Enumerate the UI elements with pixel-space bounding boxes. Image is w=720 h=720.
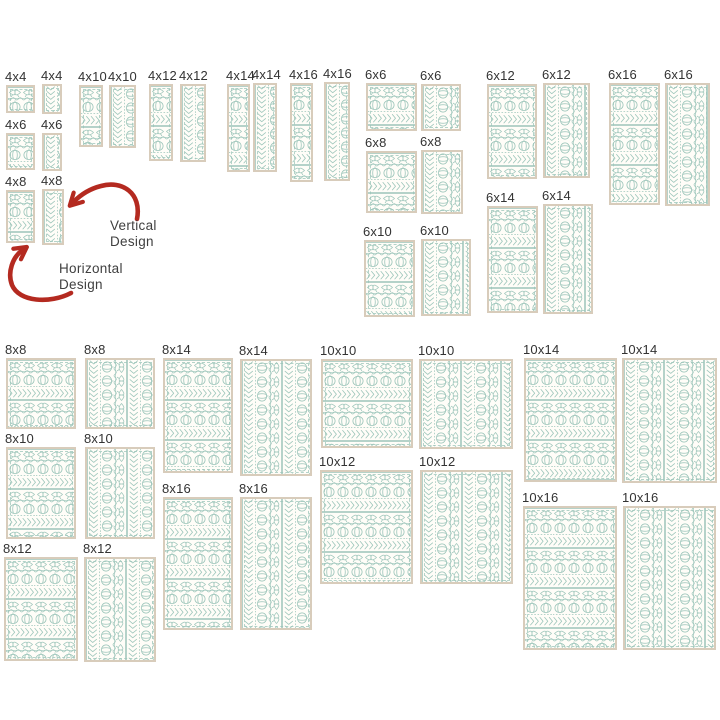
size-label-10x12-vertical: 10x12 (419, 454, 455, 469)
size-label-10x10-horizontal: 10x10 (320, 343, 356, 358)
design-swatch-4x8-horizontal (6, 190, 35, 243)
stitch-pattern-horizontal (6, 559, 76, 659)
design-swatch-6x6-horizontal (366, 83, 417, 131)
size-label-4x16-horizontal: 4x16 (289, 67, 318, 82)
catalog-layer: 4x44x44x64x64x84x84x104x104x124x124x144x… (0, 0, 720, 720)
size-label-8x14-horizontal: 8x14 (162, 342, 191, 357)
horizontal-design-note-line2: Design (59, 277, 123, 293)
size-label-10x16-horizontal: 10x16 (522, 490, 558, 505)
stitch-pattern-horizontal (525, 508, 615, 648)
stitch-pattern-horizontal (366, 242, 413, 315)
size-label-8x8-horizontal: 8x8 (5, 342, 27, 357)
size-label-4x12-vertical: 4x12 (179, 68, 208, 83)
stitch-pattern-horizontal (489, 86, 535, 177)
design-swatch-6x8-horizontal (366, 151, 417, 213)
size-label-6x8-horizontal: 6x8 (365, 135, 387, 150)
stitch-pattern-horizontal (368, 85, 415, 129)
design-swatch-4x10-horizontal (79, 85, 103, 147)
size-label-4x14-horizontal: 4x14 (226, 68, 255, 83)
vertical-design-note-line1: Vertical (110, 218, 157, 234)
size-label-6x12-vertical: 6x12 (542, 67, 571, 82)
stitch-pattern-vertical (423, 152, 461, 212)
stitch-pattern-vertical (87, 449, 153, 537)
stitch-pattern-horizontal (323, 361, 411, 446)
design-swatch-8x8-vertical (85, 358, 155, 429)
stitch-pattern-vertical (44, 86, 60, 112)
design-swatch-8x12-vertical (84, 557, 156, 662)
stitch-pattern-vertical (182, 86, 204, 160)
size-label-10x14-vertical: 10x14 (621, 342, 657, 357)
size-label-4x10-vertical: 4x10 (108, 69, 137, 84)
design-swatch-6x14-horizontal (487, 206, 538, 313)
stitch-pattern-vertical (111, 87, 134, 146)
size-label-8x10-vertical: 8x10 (84, 431, 113, 446)
size-label-6x16-horizontal: 6x16 (608, 67, 637, 82)
size-label-4x12-horizontal: 4x12 (148, 68, 177, 83)
design-swatch-10x12-vertical (420, 470, 513, 584)
design-swatch-8x12-horizontal (4, 557, 78, 661)
size-label-6x6-horizontal: 6x6 (365, 67, 387, 82)
size-label-4x4-horizontal: 4x4 (5, 69, 27, 84)
design-swatch-6x10-horizontal (364, 240, 415, 317)
design-swatch-8x14-horizontal (163, 358, 233, 473)
design-swatch-4x4-horizontal (6, 85, 35, 113)
size-label-4x10-horizontal: 4x10 (78, 69, 107, 84)
design-swatch-4x8-vertical (42, 189, 64, 245)
stitch-pattern-horizontal (8, 135, 33, 168)
design-swatch-10x16-vertical (623, 506, 716, 650)
design-swatch-4x6-horizontal (6, 133, 35, 170)
size-label-10x16-vertical: 10x16 (622, 490, 658, 505)
size-label-8x8-vertical: 8x8 (84, 342, 106, 357)
horizontal-design-note-line1: Horizontal (59, 261, 123, 277)
design-swatch-6x12-vertical (543, 83, 590, 178)
size-label-8x12-horizontal: 8x12 (3, 541, 32, 556)
design-swatch-4x4-vertical (42, 84, 62, 114)
design-swatch-10x12-horizontal (320, 470, 413, 584)
size-chart-canvas: 4x44x44x64x64x84x84x104x104x124x124x144x… (0, 0, 720, 720)
size-label-6x10-horizontal: 6x10 (363, 224, 392, 239)
design-swatch-6x8-vertical (421, 150, 463, 214)
design-swatch-4x16-horizontal (290, 83, 313, 182)
design-swatch-8x16-vertical (240, 497, 312, 630)
stitch-pattern-vertical (86, 559, 154, 660)
design-swatch-6x16-vertical (665, 83, 710, 206)
stitch-pattern-vertical (255, 85, 275, 170)
stitch-pattern-horizontal (229, 86, 248, 170)
size-label-4x16-vertical: 4x16 (323, 66, 352, 81)
stitch-pattern-vertical (421, 361, 511, 447)
stitch-pattern-horizontal (81, 87, 101, 145)
stitch-pattern-vertical (545, 206, 591, 312)
stitch-pattern-vertical (422, 472, 511, 582)
size-label-8x10-horizontal: 8x10 (5, 431, 34, 446)
size-label-4x8-horizontal: 4x8 (5, 174, 27, 189)
size-label-4x6-horizontal: 4x6 (5, 117, 27, 132)
size-label-4x4-vertical: 4x4 (41, 68, 63, 83)
design-swatch-10x10-vertical (419, 359, 513, 449)
stitch-pattern-horizontal (8, 192, 33, 241)
design-swatch-10x14-vertical (622, 358, 717, 483)
design-swatch-4x14-vertical (253, 83, 277, 172)
stitch-pattern-horizontal (8, 87, 33, 111)
stitch-pattern-horizontal (322, 472, 411, 582)
design-swatch-10x14-horizontal (524, 358, 617, 482)
size-label-8x16-horizontal: 8x16 (162, 481, 191, 496)
stitch-pattern-vertical (326, 84, 348, 179)
stitch-pattern-vertical (625, 508, 714, 648)
stitch-pattern-vertical (44, 135, 60, 169)
stitch-pattern-vertical (242, 499, 310, 628)
design-swatch-4x12-vertical (180, 84, 206, 162)
vertical-design-note-line2: Design (110, 234, 157, 250)
stitch-pattern-vertical (545, 85, 588, 176)
design-swatch-6x14-vertical (543, 204, 593, 314)
stitch-pattern-vertical (423, 241, 469, 314)
stitch-pattern-horizontal (292, 85, 311, 180)
stitch-pattern-horizontal (165, 360, 231, 471)
stitch-pattern-vertical (667, 85, 708, 204)
size-label-8x16-vertical: 8x16 (239, 481, 268, 496)
stitch-pattern-horizontal (611, 85, 658, 203)
stitch-pattern-vertical (624, 360, 715, 481)
design-swatch-8x14-vertical (240, 359, 312, 476)
design-swatch-6x16-horizontal (609, 83, 660, 205)
size-label-10x10-vertical: 10x10 (418, 343, 454, 358)
design-swatch-6x12-horizontal (487, 84, 537, 179)
size-label-4x14-vertical: 4x14 (252, 67, 281, 82)
stitch-pattern-horizontal (8, 360, 74, 427)
stitch-pattern-vertical (242, 361, 310, 474)
design-swatch-6x10-vertical (421, 239, 471, 316)
size-label-6x14-horizontal: 6x14 (486, 190, 515, 205)
size-label-6x12-horizontal: 6x12 (486, 68, 515, 83)
stitch-pattern-vertical (87, 360, 153, 427)
size-label-6x14-vertical: 6x14 (542, 188, 571, 203)
stitch-pattern-horizontal (489, 208, 536, 311)
stitch-pattern-horizontal (8, 449, 74, 537)
size-label-8x14-vertical: 8x14 (239, 343, 268, 358)
design-swatch-8x8-horizontal (6, 358, 76, 429)
size-label-6x10-vertical: 6x10 (420, 223, 449, 238)
vertical-design-note: Vertical Design (110, 218, 157, 250)
size-label-10x14-horizontal: 10x14 (523, 342, 559, 357)
design-swatch-4x14-horizontal (227, 84, 250, 172)
design-swatch-8x10-horizontal (6, 447, 76, 539)
size-label-6x6-vertical: 6x6 (420, 68, 442, 83)
design-swatch-8x10-vertical (85, 447, 155, 539)
size-label-4x8-vertical: 4x8 (41, 173, 63, 188)
stitch-pattern-vertical (44, 191, 62, 243)
design-swatch-4x10-vertical (109, 85, 136, 148)
design-swatch-10x10-horizontal (321, 359, 413, 448)
stitch-pattern-horizontal (151, 86, 171, 159)
design-swatch-4x12-horizontal (149, 84, 173, 161)
design-swatch-6x6-vertical (421, 84, 461, 131)
stitch-pattern-horizontal (368, 153, 415, 211)
size-label-8x12-vertical: 8x12 (83, 541, 112, 556)
size-label-4x6-vertical: 4x6 (41, 117, 63, 132)
design-swatch-10x16-horizontal (523, 506, 617, 650)
stitch-pattern-vertical (423, 86, 459, 129)
size-label-10x12-horizontal: 10x12 (319, 454, 355, 469)
design-swatch-4x16-vertical (324, 82, 350, 181)
stitch-pattern-horizontal (526, 360, 615, 480)
design-swatch-8x16-horizontal (163, 497, 233, 630)
stitch-pattern-horizontal (165, 499, 231, 628)
design-swatch-4x6-vertical (42, 133, 62, 171)
size-label-6x8-vertical: 6x8 (420, 134, 442, 149)
horizontal-design-note: Horizontal Design (59, 261, 123, 293)
size-label-6x16-vertical: 6x16 (664, 67, 693, 82)
